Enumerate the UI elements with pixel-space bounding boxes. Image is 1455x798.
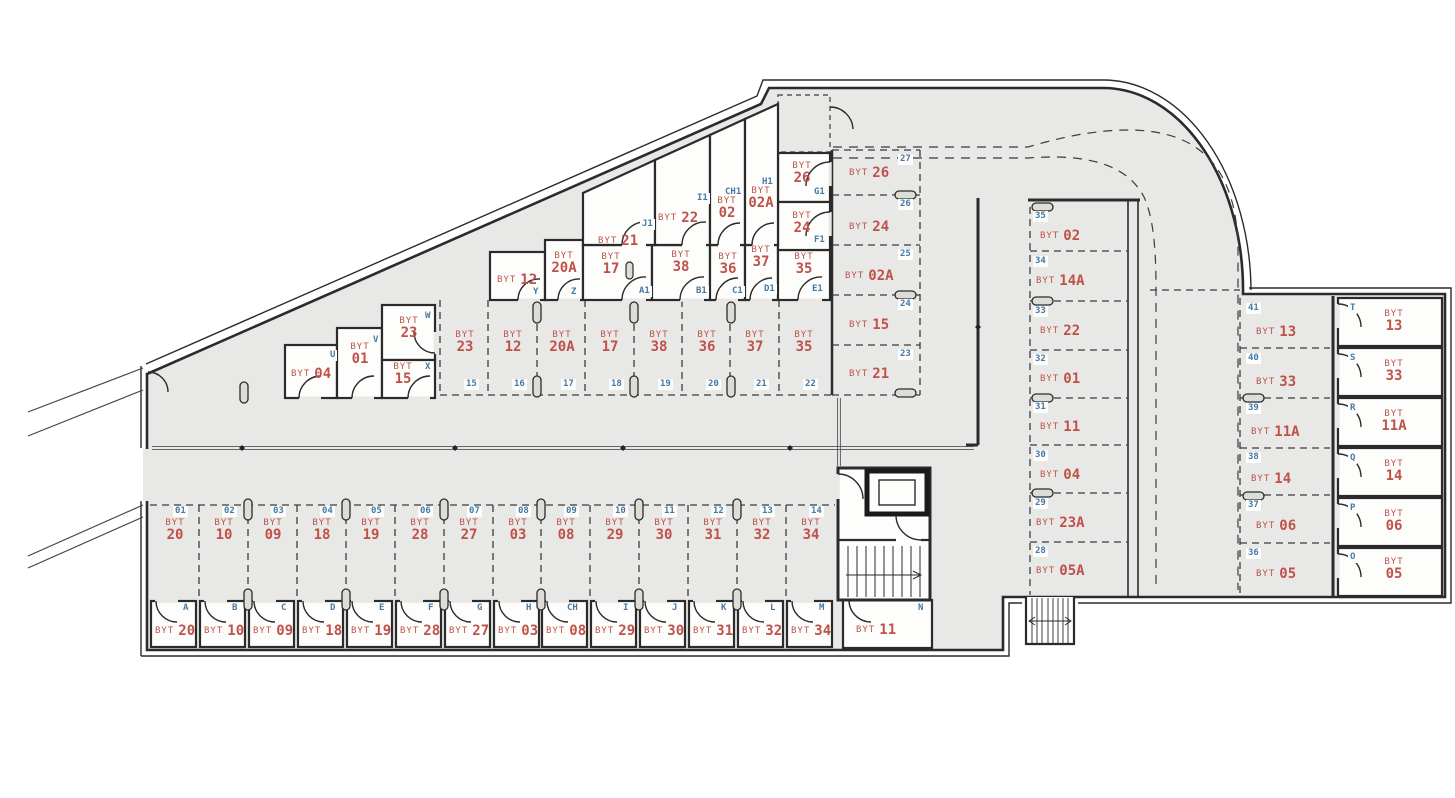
- parking-space-number: 09: [564, 506, 579, 517]
- cellar-code: F1: [812, 235, 827, 246]
- cellar-code: F: [426, 603, 435, 614]
- unit-label: BYT22: [658, 205, 698, 226]
- unit-label: BYT12: [497, 267, 537, 288]
- unit-label: BYT34: [791, 618, 831, 639]
- unit-label: BYT08: [549, 518, 583, 543]
- unit-label: BYT02A: [744, 186, 778, 211]
- parking-space-number: 10: [613, 506, 628, 517]
- unit-label: BYT17: [593, 330, 627, 355]
- unit-label: BYT04: [1040, 462, 1080, 483]
- elevator-shaft: [867, 471, 927, 514]
- unit-label: BYT11: [1040, 414, 1080, 435]
- unit-label: BYT29: [598, 518, 632, 543]
- cellar-code: I1: [695, 193, 710, 204]
- unit-label: BYT09: [256, 518, 290, 543]
- parking-space-number: 41: [1246, 303, 1261, 314]
- unit-label: BYT01: [343, 342, 377, 367]
- unit-label: BYT37: [744, 245, 778, 270]
- unit-label: BYT05A: [1036, 558, 1085, 579]
- unit-label: BYT24: [849, 214, 889, 235]
- parking-space-number: 38: [1246, 452, 1261, 463]
- parking-space-number: 13: [760, 506, 775, 517]
- unit-label: BYT14: [1376, 459, 1412, 484]
- parking-space-number: 15: [464, 379, 479, 390]
- parking-space-number: 20: [706, 379, 721, 390]
- parking-space-number: 28: [1033, 546, 1048, 557]
- unit-label: BYT09: [253, 618, 293, 639]
- unit-label: BYT30: [647, 518, 681, 543]
- cellar-code: Y: [531, 287, 540, 298]
- unit-label: BYT23A: [1036, 510, 1085, 531]
- unit-label: BYT35: [787, 252, 821, 277]
- unit-label: BYT06: [1256, 513, 1296, 534]
- unit-label: BYT36: [690, 330, 724, 355]
- unit-label: BYT11: [856, 617, 896, 638]
- unit-label: BYT33: [1256, 369, 1296, 390]
- cellar-code: A: [181, 603, 190, 614]
- unit-label: BYT19: [354, 518, 388, 543]
- exterior-ramp-walls: [28, 368, 143, 568]
- parking-space-number: 19: [658, 379, 673, 390]
- cellar-code: G: [475, 603, 484, 614]
- parking-space-number: 22: [803, 379, 818, 390]
- unit-label: BYT15: [849, 312, 889, 333]
- cellar-code: T: [1348, 303, 1357, 314]
- parking-space-number: 40: [1246, 353, 1261, 364]
- cellar-code: O: [1348, 552, 1357, 563]
- unit-label: BYT23: [448, 330, 482, 355]
- parking-space-number: 06: [418, 506, 433, 517]
- cellar-code: B: [230, 603, 239, 614]
- unit-label: BYT02A: [845, 263, 894, 284]
- parking-space-number: 23: [898, 349, 913, 360]
- unit-label: BYT33: [1376, 359, 1412, 384]
- parking-space-number: 30: [1033, 450, 1048, 461]
- unit-label: BYT06: [1376, 509, 1412, 534]
- unit-label: BYT14: [1251, 466, 1291, 487]
- parking-space-number: 24: [898, 299, 913, 310]
- parking-space-number: 32: [1033, 354, 1048, 365]
- cellar-code: J1: [640, 219, 655, 230]
- parking-space-number: 08: [516, 506, 531, 517]
- unit-label: BYT11A: [1376, 409, 1412, 434]
- unit-label: BYT05: [1256, 561, 1296, 582]
- cellar-code: X: [423, 362, 432, 373]
- unit-label: BYT18: [305, 518, 339, 543]
- unit-label: BYT17: [594, 252, 628, 277]
- unit-label: BYT28: [400, 618, 440, 639]
- parking-space-number: 31: [1033, 402, 1048, 413]
- parking-space-number: 12: [711, 506, 726, 517]
- cellar-code: C1: [730, 286, 745, 297]
- parking-space-number: 34: [1033, 256, 1048, 267]
- parking-space-number: 29: [1033, 498, 1048, 509]
- parking-space-number: 17: [561, 379, 576, 390]
- unit-label: BYT12: [496, 330, 530, 355]
- unit-label: BYT02: [1040, 223, 1080, 244]
- cellar-code: M: [817, 603, 826, 614]
- parking-space-number: 11: [662, 506, 677, 517]
- parking-space-number: 05: [369, 506, 384, 517]
- garage-floor-plan: 01 02 03 04 05 06 07 08 09 10 11 12 13 1…: [0, 0, 1455, 798]
- cellar-code: G1: [812, 187, 827, 198]
- unit-label: BYT31: [693, 618, 733, 639]
- unit-label: BYT21: [598, 228, 638, 249]
- cellar-code: A1: [637, 286, 652, 297]
- cellar-code: J: [670, 603, 679, 614]
- cellar-code: K: [719, 603, 728, 614]
- cellar-code: C: [279, 603, 288, 614]
- parking-space-number: 39: [1246, 403, 1261, 414]
- cellar-code: D: [328, 603, 337, 614]
- parking-space-number: 21: [754, 379, 769, 390]
- parking-space-number: 27: [898, 154, 913, 165]
- parking-space-number: 36: [1246, 548, 1261, 559]
- parking-space-number: 07: [467, 506, 482, 517]
- unit-label: BYT28: [403, 518, 437, 543]
- parking-space-number: 16: [512, 379, 527, 390]
- cellar-code: Q: [1348, 453, 1357, 464]
- unit-label: BYT14A: [1036, 268, 1085, 289]
- unit-label: BYT26: [785, 161, 819, 186]
- parking-space-number: 14: [809, 506, 824, 517]
- unit-label: BYT38: [642, 330, 676, 355]
- cellar-code: E1: [810, 284, 825, 295]
- unit-label: BYT27: [449, 618, 489, 639]
- unit-label: BYT20: [155, 618, 195, 639]
- parking-space-number: 04: [320, 506, 335, 517]
- floor-plan-drawing: [0, 0, 1455, 798]
- unit-label: BYT26: [849, 160, 889, 181]
- cellar-code: I: [621, 603, 630, 614]
- unit-label: BYT02: [712, 196, 742, 221]
- parking-space-number: 26: [898, 199, 913, 210]
- unit-label: BYT05: [1376, 557, 1412, 582]
- unit-label: BYT03: [498, 618, 538, 639]
- cellar-code: S: [1348, 353, 1357, 364]
- cellar-code: Z: [569, 287, 578, 298]
- cellar-code: D1: [762, 284, 777, 295]
- unit-label: BYT19: [351, 618, 391, 639]
- cellar-code: CH: [565, 603, 580, 614]
- cellar-code: H: [524, 603, 533, 614]
- unit-label: BYT20A: [547, 251, 581, 276]
- unit-label: BYT04: [291, 361, 331, 382]
- unit-label: BYT18: [302, 618, 342, 639]
- unit-label: BYT38: [664, 250, 698, 275]
- core: [836, 468, 930, 600]
- unit-label: BYT21: [849, 361, 889, 382]
- parking-space-number: 03: [271, 506, 286, 517]
- unit-label: BYT22: [1040, 318, 1080, 339]
- unit-label: BYT01: [1040, 366, 1080, 387]
- unit-label: BYT15: [386, 362, 420, 387]
- cellar-code: B1: [694, 286, 709, 297]
- unit-label: BYT10: [207, 518, 241, 543]
- unit-label: BYT20A: [545, 330, 579, 355]
- unit-label: BYT10: [204, 618, 244, 639]
- parking-space-number: 33: [1033, 306, 1048, 317]
- parking-space-number: 02: [222, 506, 237, 517]
- unit-label: BYT11A: [1251, 419, 1300, 440]
- unit-label: BYT08: [546, 618, 586, 639]
- cellar-code: R: [1348, 403, 1357, 414]
- parking-space-number: 35: [1033, 211, 1048, 222]
- unit-label: BYT13: [1376, 309, 1412, 334]
- unit-label: BYT31: [696, 518, 730, 543]
- parking-space-number: 37: [1246, 500, 1261, 511]
- parking-space-number: 25: [898, 249, 913, 260]
- unit-label: BYT32: [742, 618, 782, 639]
- unit-label: BYT29: [595, 618, 635, 639]
- unit-label: BYT35: [787, 330, 821, 355]
- unit-label: BYT13: [1256, 319, 1296, 340]
- cellar-code: E: [377, 603, 386, 614]
- unit-label: BYT27: [452, 518, 486, 543]
- cellar-code: N: [916, 603, 925, 614]
- unit-label: BYT23: [392, 316, 426, 341]
- exterior-stair: [1026, 597, 1074, 644]
- cellar-code: U: [328, 350, 337, 361]
- unit-label: BYT03: [501, 518, 535, 543]
- parking-space-number: 01: [173, 506, 188, 517]
- unit-label: BYT34: [794, 518, 828, 543]
- unit-label: BYT36: [711, 252, 745, 277]
- unit-label: BYT32: [745, 518, 779, 543]
- unit-label: BYT30: [644, 618, 684, 639]
- cellar-code: L: [768, 603, 777, 614]
- unit-label: BYT20: [158, 518, 192, 543]
- unit-label: BYT37: [738, 330, 772, 355]
- cellar-code: P: [1348, 503, 1357, 514]
- parking-space-number: 18: [609, 379, 624, 390]
- unit-label: BYT24: [785, 211, 819, 236]
